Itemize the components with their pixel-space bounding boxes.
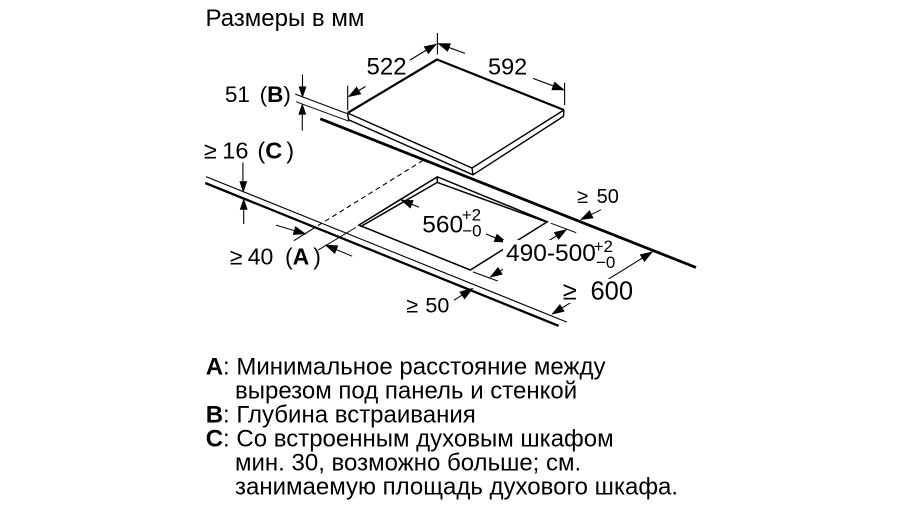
- svg-text:вырезом под панель и стенкой: вырезом под панель и стенкой: [235, 377, 577, 404]
- svg-text:В: Глубина встраивания: В: Глубина встраивания: [206, 401, 476, 428]
- svg-text:Размеры в мм: Размеры в мм: [206, 5, 365, 32]
- svg-text:≥50: ≥50: [577, 186, 619, 208]
- svg-text:С: Со встроенным духовым шкафо: С: Со встроенным духовым шкафом: [206, 425, 614, 452]
- svg-text:51(B): 51(B): [225, 82, 291, 107]
- svg-text:522: 522: [367, 54, 407, 81]
- svg-text:−0: −0: [596, 253, 615, 272]
- svg-text:≥40(A): ≥40(A): [230, 244, 321, 270]
- svg-text:≥600: ≥600: [563, 277, 633, 305]
- svg-text:592: 592: [488, 53, 527, 79]
- svg-text:занимаемую площадь духового шк: занимаемую площадь духового шкафа.: [235, 473, 678, 500]
- svg-text:≥16(C): ≥16(C): [204, 138, 294, 164]
- svg-text:А: Минимальное расстояние межд: А: Минимальное расстояние между: [206, 353, 606, 380]
- svg-text:560: 560: [422, 212, 463, 239]
- svg-text:490-500: 490-500: [506, 240, 596, 267]
- svg-text:−0: −0: [462, 221, 481, 240]
- svg-text:≥50: ≥50: [406, 293, 449, 317]
- svg-text:мин. 30, возможно больше; см.: мин. 30, возможно больше; см.: [235, 449, 581, 476]
